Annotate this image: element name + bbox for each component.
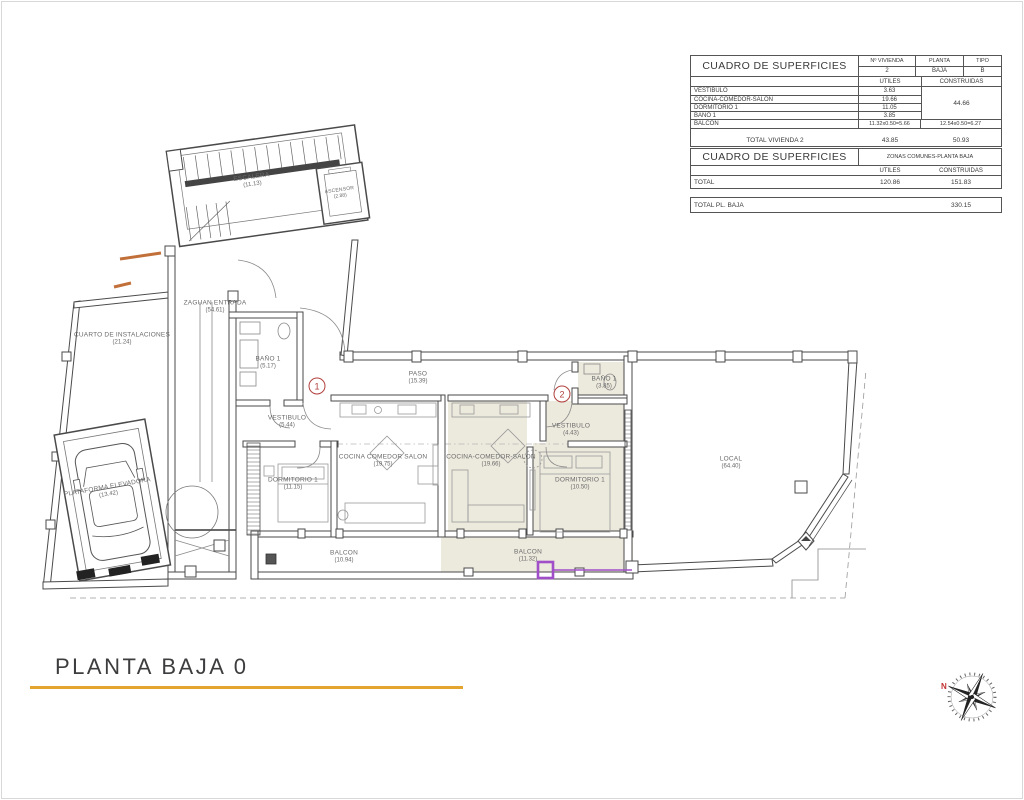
row-utiles: 19.66 xyxy=(859,96,920,103)
row-label: VESTIBULO xyxy=(691,87,859,95)
table2-zone: ZONAS COMUNES-PLANTA BAJA xyxy=(859,149,1001,165)
title-underline xyxy=(30,686,463,689)
construidas-merged-value: 44.66 xyxy=(921,87,1001,119)
header-utiles: UTILES xyxy=(859,77,921,86)
corner-diamond-pillar xyxy=(798,532,814,550)
surfaces-table-comunes: CUADRO DE SUPERFICIES ZONAS COMUNES-PLAN… xyxy=(690,148,1002,213)
num-vivienda-value: 2 xyxy=(859,67,915,75)
balcon-label: BALCON xyxy=(691,120,859,128)
table1-title: CUADRO DE SUPERFICIES xyxy=(691,56,859,76)
row-utiles: 3.63 xyxy=(859,87,920,95)
total-vivienda-label: TOTAL VIVIENDA 2 xyxy=(691,134,859,146)
page-title: PLANTA BAJA 0 xyxy=(55,654,249,680)
tipo-value: B xyxy=(964,67,1001,75)
row-utiles: 11.05 xyxy=(859,104,920,111)
grand-total-label: TOTAL PL. BAJA xyxy=(691,198,921,212)
balcon-utiles: 11.32x0.50=5.66 xyxy=(859,120,920,128)
header-construidas: CONSTRUIDAS xyxy=(921,77,1001,86)
planta-value: BAJA xyxy=(916,67,963,75)
compass-north-label: N xyxy=(941,682,947,691)
total-vivienda-construidas: 50.93 xyxy=(921,134,1001,146)
total-vivienda-utiles: 43.85 xyxy=(859,134,921,146)
surfaces-table-vivienda: CUADRO DE SUPERFICIES Nº VIVIENDA 2 PLAN… xyxy=(690,55,1002,147)
comunes-total-construidas: 151.83 xyxy=(921,176,1001,188)
comunes-header-utiles: UTILES xyxy=(859,166,921,175)
comunes-header-construidas: CONSTRUIDAS xyxy=(921,166,1001,175)
col-num-vivienda: Nº VIVIENDA xyxy=(859,56,915,67)
row-label: DORMITORIO 1 xyxy=(691,104,859,111)
corridor-details xyxy=(166,302,236,577)
orange-steps xyxy=(114,253,161,287)
unit-marker-2: 2 xyxy=(554,386,571,403)
col-planta: PLANTA xyxy=(916,56,963,67)
stair-block xyxy=(166,125,369,247)
glazing-line xyxy=(809,480,852,546)
car-platform xyxy=(52,419,170,582)
elevator-shaft xyxy=(316,162,369,224)
comunes-total-label: TOTAL xyxy=(691,176,859,188)
balcony-pillar xyxy=(266,554,276,564)
table2-title: CUADRO DE SUPERFICIES xyxy=(691,149,859,165)
row-label: COCINA-COMEDOR-SALON xyxy=(691,96,859,103)
row-label: BAÑO 1 xyxy=(691,112,859,119)
balcon-construidas: 12.54x0.50=6.27 xyxy=(920,120,1000,128)
compass-rose: N xyxy=(937,662,1006,731)
drawing-sheet: N ESCALERA (11.13) ASCENSOR (2.88) ZAGUA… xyxy=(0,0,1024,800)
comunes-total-utiles: 120.86 xyxy=(859,176,921,188)
col-tipo: TIPO xyxy=(964,56,1001,67)
bedroom1-furniture xyxy=(264,464,328,522)
unit-marker-1: 1 xyxy=(309,378,326,395)
row-utiles: 3.85 xyxy=(859,112,920,119)
bath1-fixtures xyxy=(240,322,290,386)
grand-total-value: 330.15 xyxy=(921,198,1001,212)
apartment-2-shade xyxy=(441,362,633,573)
kitchen1-furniture xyxy=(338,403,438,523)
